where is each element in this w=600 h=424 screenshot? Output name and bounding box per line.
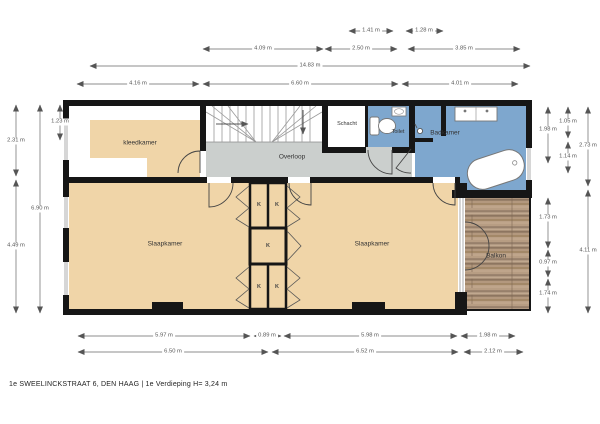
sink-icon [392,107,406,116]
floorplan-canvas [0,0,600,424]
radiator-right [352,302,385,310]
window-left-3 [63,262,69,295]
radiator-left [152,302,183,310]
window-left-1 [63,125,69,160]
address-title: 1e SWEELINCKSTRAAT 6, DEN HAAG | 1e Verd… [9,381,227,388]
floorplan-page: { "footer": { "text": "1e SWEELINCKSTRAA… [0,0,600,424]
window-left-2 [63,197,69,228]
stairs-icon [206,106,322,142]
toilet-icon [370,117,396,135]
washbasin-icon [455,107,497,121]
window-right-badkamer [526,148,532,180]
window-wall-balkon [458,198,465,292]
